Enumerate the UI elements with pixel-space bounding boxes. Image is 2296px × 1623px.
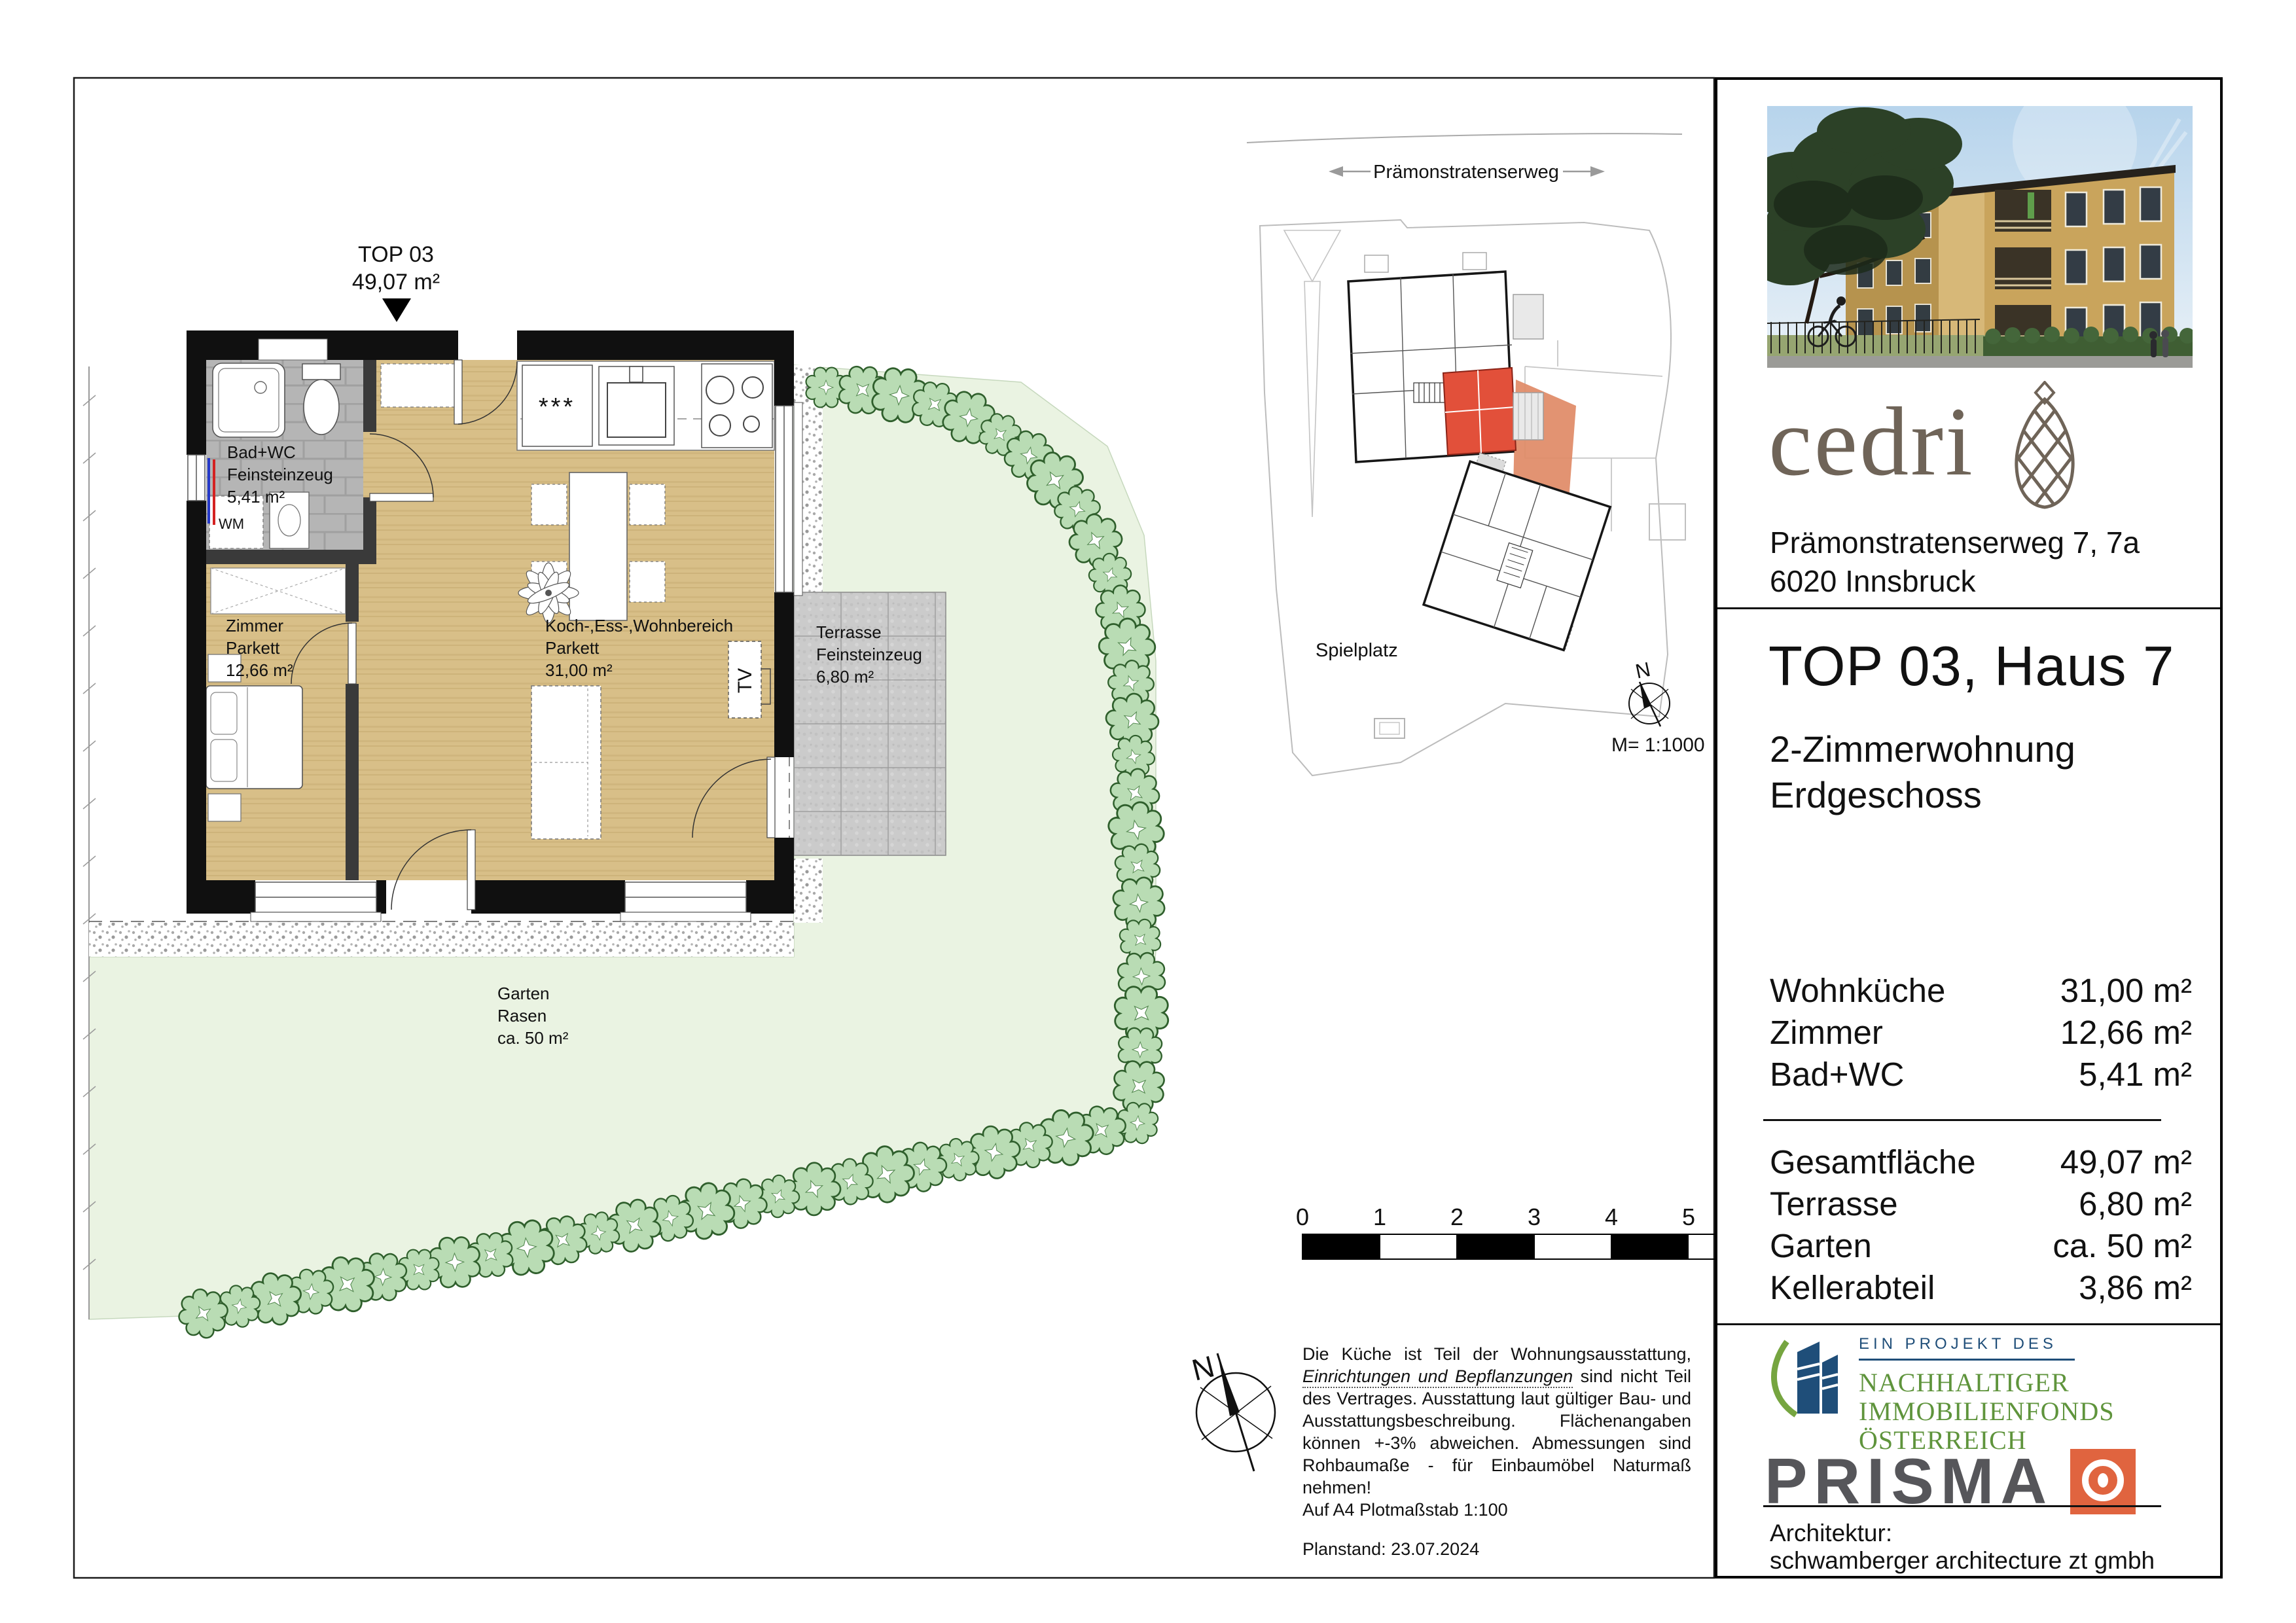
prisma-wordmark: PRISMA <box>1765 1444 2053 1518</box>
table-row: Kellerabteil 3,86 m² <box>1770 1267 2192 1309</box>
table-row: Gesamtfläche 49,07 m² <box>1770 1141 2192 1183</box>
entrance-pointer-icon <box>382 298 411 322</box>
svg-text:1: 1 <box>1373 1204 1386 1230</box>
garden-label-area: ca. 50 m² <box>497 1028 569 1048</box>
shower <box>213 363 285 437</box>
room-label: Bad+WC <box>1770 1054 1905 1096</box>
svg-text:Bad+WC: Bad+WC <box>227 442 296 462</box>
garden-door <box>467 830 475 910</box>
panel-divider <box>1717 1323 2220 1325</box>
toilet <box>304 380 339 435</box>
prisma-logo-row: PRISMA <box>1765 1444 2136 1518</box>
project-address: Prämonstratenserweg 7, 7a 6020 Innsbruck <box>1770 524 2140 601</box>
arrow-right-icon <box>1590 166 1605 177</box>
total-value: 3,86 m² <box>2079 1267 2192 1309</box>
total-value: 49,07 m² <box>2060 1141 2192 1183</box>
architect-name: schwamberger architecture zt gmbh <box>1770 1547 2155 1575</box>
fridge-stars-icon: *** <box>539 393 575 421</box>
project-kicker: EIN PROJEKT DES <box>1859 1335 2115 1353</box>
scale-bar: 0 1 2 3 4 5 <box>1296 1204 1715 1259</box>
svg-text:Feinsteinzeug: Feinsteinzeug <box>227 465 333 484</box>
total-label: Kellerabteil <box>1770 1267 1935 1309</box>
table-row: Zimmer 12,66 m² <box>1770 1012 2192 1054</box>
siteplan-haus-lower <box>1424 451 1615 651</box>
plant <box>518 563 579 623</box>
architect-label: Architektur: <box>1770 1520 2155 1547</box>
chair <box>531 484 567 525</box>
disclaimer: Die Küche ist Teil der Wohnungsausstattu… <box>1302 1343 1691 1521</box>
terrace: Terrasse Feinsteinzeug 6,80 m² <box>789 592 946 855</box>
fund-name-line1: NACHHALTIGER <box>1859 1368 2115 1397</box>
svg-text:Parkett: Parkett <box>226 638 280 658</box>
fund-logo-block: EIN PROJEKT DES NACHHALTIGER IMMOBILIENF… <box>1767 1335 2115 1455</box>
table-row: Terrasse 6,80 m² <box>1770 1183 2192 1225</box>
disclaimer-plot-scale: Auf A4 Plotmaßstab 1:100 <box>1302 1500 1508 1520</box>
total-label: Terrasse <box>1770 1183 1898 1225</box>
svg-text:12,66 m²: 12,66 m² <box>226 660 293 680</box>
street-photo <box>1767 356 2193 368</box>
arrow-left-icon <box>1329 166 1343 177</box>
room-area-table: Wohnküche 31,00 m² Zimmer 12,66 m² Bad+W… <box>1770 970 2192 1096</box>
address-line1: Prämonstratenserweg 7, 7a <box>1770 524 2140 562</box>
tv-label: TV <box>734 668 756 693</box>
building-photo <box>1767 106 2193 368</box>
svg-text:Koch-,Ess-,Wohnbereich: Koch-,Ess-,Wohnbereich <box>545 616 733 635</box>
svg-text:N: N <box>1634 658 1653 683</box>
disclaimer-text: Die Küche ist Teil der Wohnungsausstattu… <box>1302 1344 1691 1364</box>
pillow <box>211 692 237 734</box>
terrace-door <box>767 757 775 838</box>
nightstand <box>208 794 241 821</box>
total-label: Gesamtfläche <box>1770 1141 1976 1183</box>
terrace-label-area: 6,80 m² <box>816 667 874 687</box>
unit-title: TOP 03, Haus 7 <box>1768 635 2174 699</box>
chair <box>630 562 665 602</box>
prisma-target-icon <box>2070 1449 2136 1514</box>
total-label: Garten <box>1770 1225 1872 1267</box>
fund-logo-icon <box>1767 1335 1844 1420</box>
bedroom-door <box>348 623 356 684</box>
room-value: 12,66 m² <box>2060 1012 2192 1054</box>
svg-text:5: 5 <box>1682 1204 1695 1230</box>
plan-sheet: Garten Rasen ca. 50 m² Terrasse Feinstei… <box>0 0 2296 1623</box>
total-value: 6,80 m² <box>2079 1183 2192 1225</box>
sofa <box>531 686 601 839</box>
svg-text:Zimmer: Zimmer <box>226 616 283 635</box>
garden-label-floor: Rasen <box>497 1006 547 1026</box>
chair <box>630 484 665 525</box>
terrace-label-floor: Feinsteinzeug <box>816 645 922 664</box>
plan-date: Planstand: 23.07.2024 <box>1302 1539 1479 1560</box>
panel-divider <box>1717 607 2220 609</box>
siteplan-haus7 <box>1348 253 1576 517</box>
svg-text:4: 4 <box>1605 1204 1618 1230</box>
room-value: 31,00 m² <box>2060 970 2192 1012</box>
room-label: Zimmer <box>1770 1012 1883 1054</box>
unit-label: TOP 03 49,07 m² <box>352 242 440 322</box>
architect-block: Architektur: schwamberger architecture z… <box>1770 1520 2155 1575</box>
svg-text:N: N <box>1189 1349 1218 1387</box>
hall-closet <box>381 364 458 407</box>
unit-floor: Erdgeschoss <box>1770 772 2075 818</box>
svg-text:31,00 m²: 31,00 m² <box>545 660 613 680</box>
site-plan: Prämonstratenserweg <box>1247 134 1705 776</box>
svg-text:TOP 03: TOP 03 <box>358 242 434 267</box>
svg-text:0: 0 <box>1296 1204 1309 1230</box>
svg-text:3: 3 <box>1528 1204 1541 1230</box>
room-label: Wohnküche <box>1770 970 1945 1012</box>
disclaimer-italic: Einrichtungen und Bepflanzungen <box>1302 1366 1573 1388</box>
dining-table <box>569 473 627 620</box>
wall-niche <box>259 339 327 360</box>
kicker-rule <box>1859 1359 2075 1361</box>
table-row: Garten ca. 50 m² <box>1770 1225 2192 1267</box>
room-value: 5,41 m² <box>2079 1054 2192 1096</box>
siteplan-scale-label: M= 1:1000 <box>1611 734 1705 756</box>
apartment: TOP 03 49,07 m² *** <box>187 242 802 921</box>
garden-label-name: Garten <box>497 984 550 1003</box>
table-row: Wohnküche 31,00 m² <box>1770 970 2192 1012</box>
table-separator <box>1763 1119 2161 1121</box>
cedri-logo: cedri <box>1768 386 1975 497</box>
north-compass: N <box>1189 1349 1275 1471</box>
unit-subtitle: 2-Zimmerwohnung Erdgeschoss <box>1770 726 2075 818</box>
table-row: Bad+WC 5,41 m² <box>1770 1054 2192 1096</box>
street: Prämonstratenserweg <box>1329 162 1605 183</box>
architect-separator <box>1763 1505 2161 1507</box>
fund-name-line2: IMMOBILIENFONDS <box>1859 1397 2115 1426</box>
playground-label: Spielplatz <box>1316 640 1398 661</box>
stove <box>702 364 772 448</box>
bath-door <box>370 493 433 501</box>
svg-text:Parkett: Parkett <box>545 638 600 658</box>
address-line2: 6020 Innsbruck <box>1770 562 2140 601</box>
wm-label: WM <box>219 516 244 532</box>
svg-text:49,07 m²: 49,07 m² <box>352 270 440 294</box>
terrace-label-name: Terrasse <box>816 622 882 642</box>
play-equipment <box>1374 719 1405 738</box>
svg-text:2: 2 <box>1450 1204 1463 1230</box>
pillow <box>211 740 237 781</box>
total-value: ca. 50 m² <box>2053 1225 2192 1267</box>
info-panel: cedri Prämonstratenserweg 7, 7a 6020 Inn… <box>1715 77 2223 1578</box>
svg-text:5,41 m²: 5,41 m² <box>227 487 285 507</box>
pinecone-icon <box>2002 381 2087 515</box>
unit-type: 2-Zimmerwohnung <box>1770 726 2075 772</box>
svg-text:Prämonstratenserweg: Prämonstratenserweg <box>1373 162 1559 183</box>
totals-table: Gesamtfläche 49,07 m² Terrasse 6,80 m² G… <box>1770 1141 2192 1309</box>
entrance-door <box>454 360 462 424</box>
brand-row: cedri <box>1768 386 2087 515</box>
